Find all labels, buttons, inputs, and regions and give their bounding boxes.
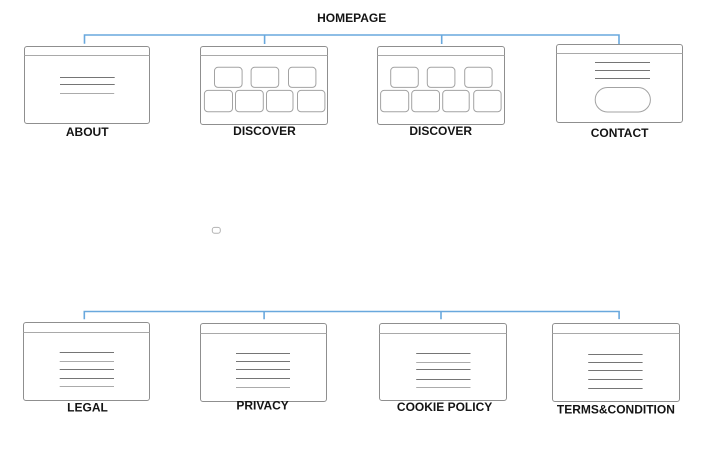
svg-text:HOMEPAGE: HOMEPAGE [317, 11, 386, 25]
svg-text:COOKIE POLICY: COOKIE POLICY [397, 400, 492, 414]
svg-text:DISCOVER: DISCOVER [233, 124, 296, 138]
svg-text:ABOUT: ABOUT [66, 125, 109, 139]
svg-text:LEGAL: LEGAL [67, 401, 108, 415]
svg-text:TERMS&CONDITION: TERMS&CONDITION [557, 403, 675, 417]
svg-text:CONTACT: CONTACT [591, 126, 649, 140]
svg-text:DISCOVER: DISCOVER [409, 124, 472, 138]
svg-text:PRIVACY: PRIVACY [236, 399, 288, 413]
